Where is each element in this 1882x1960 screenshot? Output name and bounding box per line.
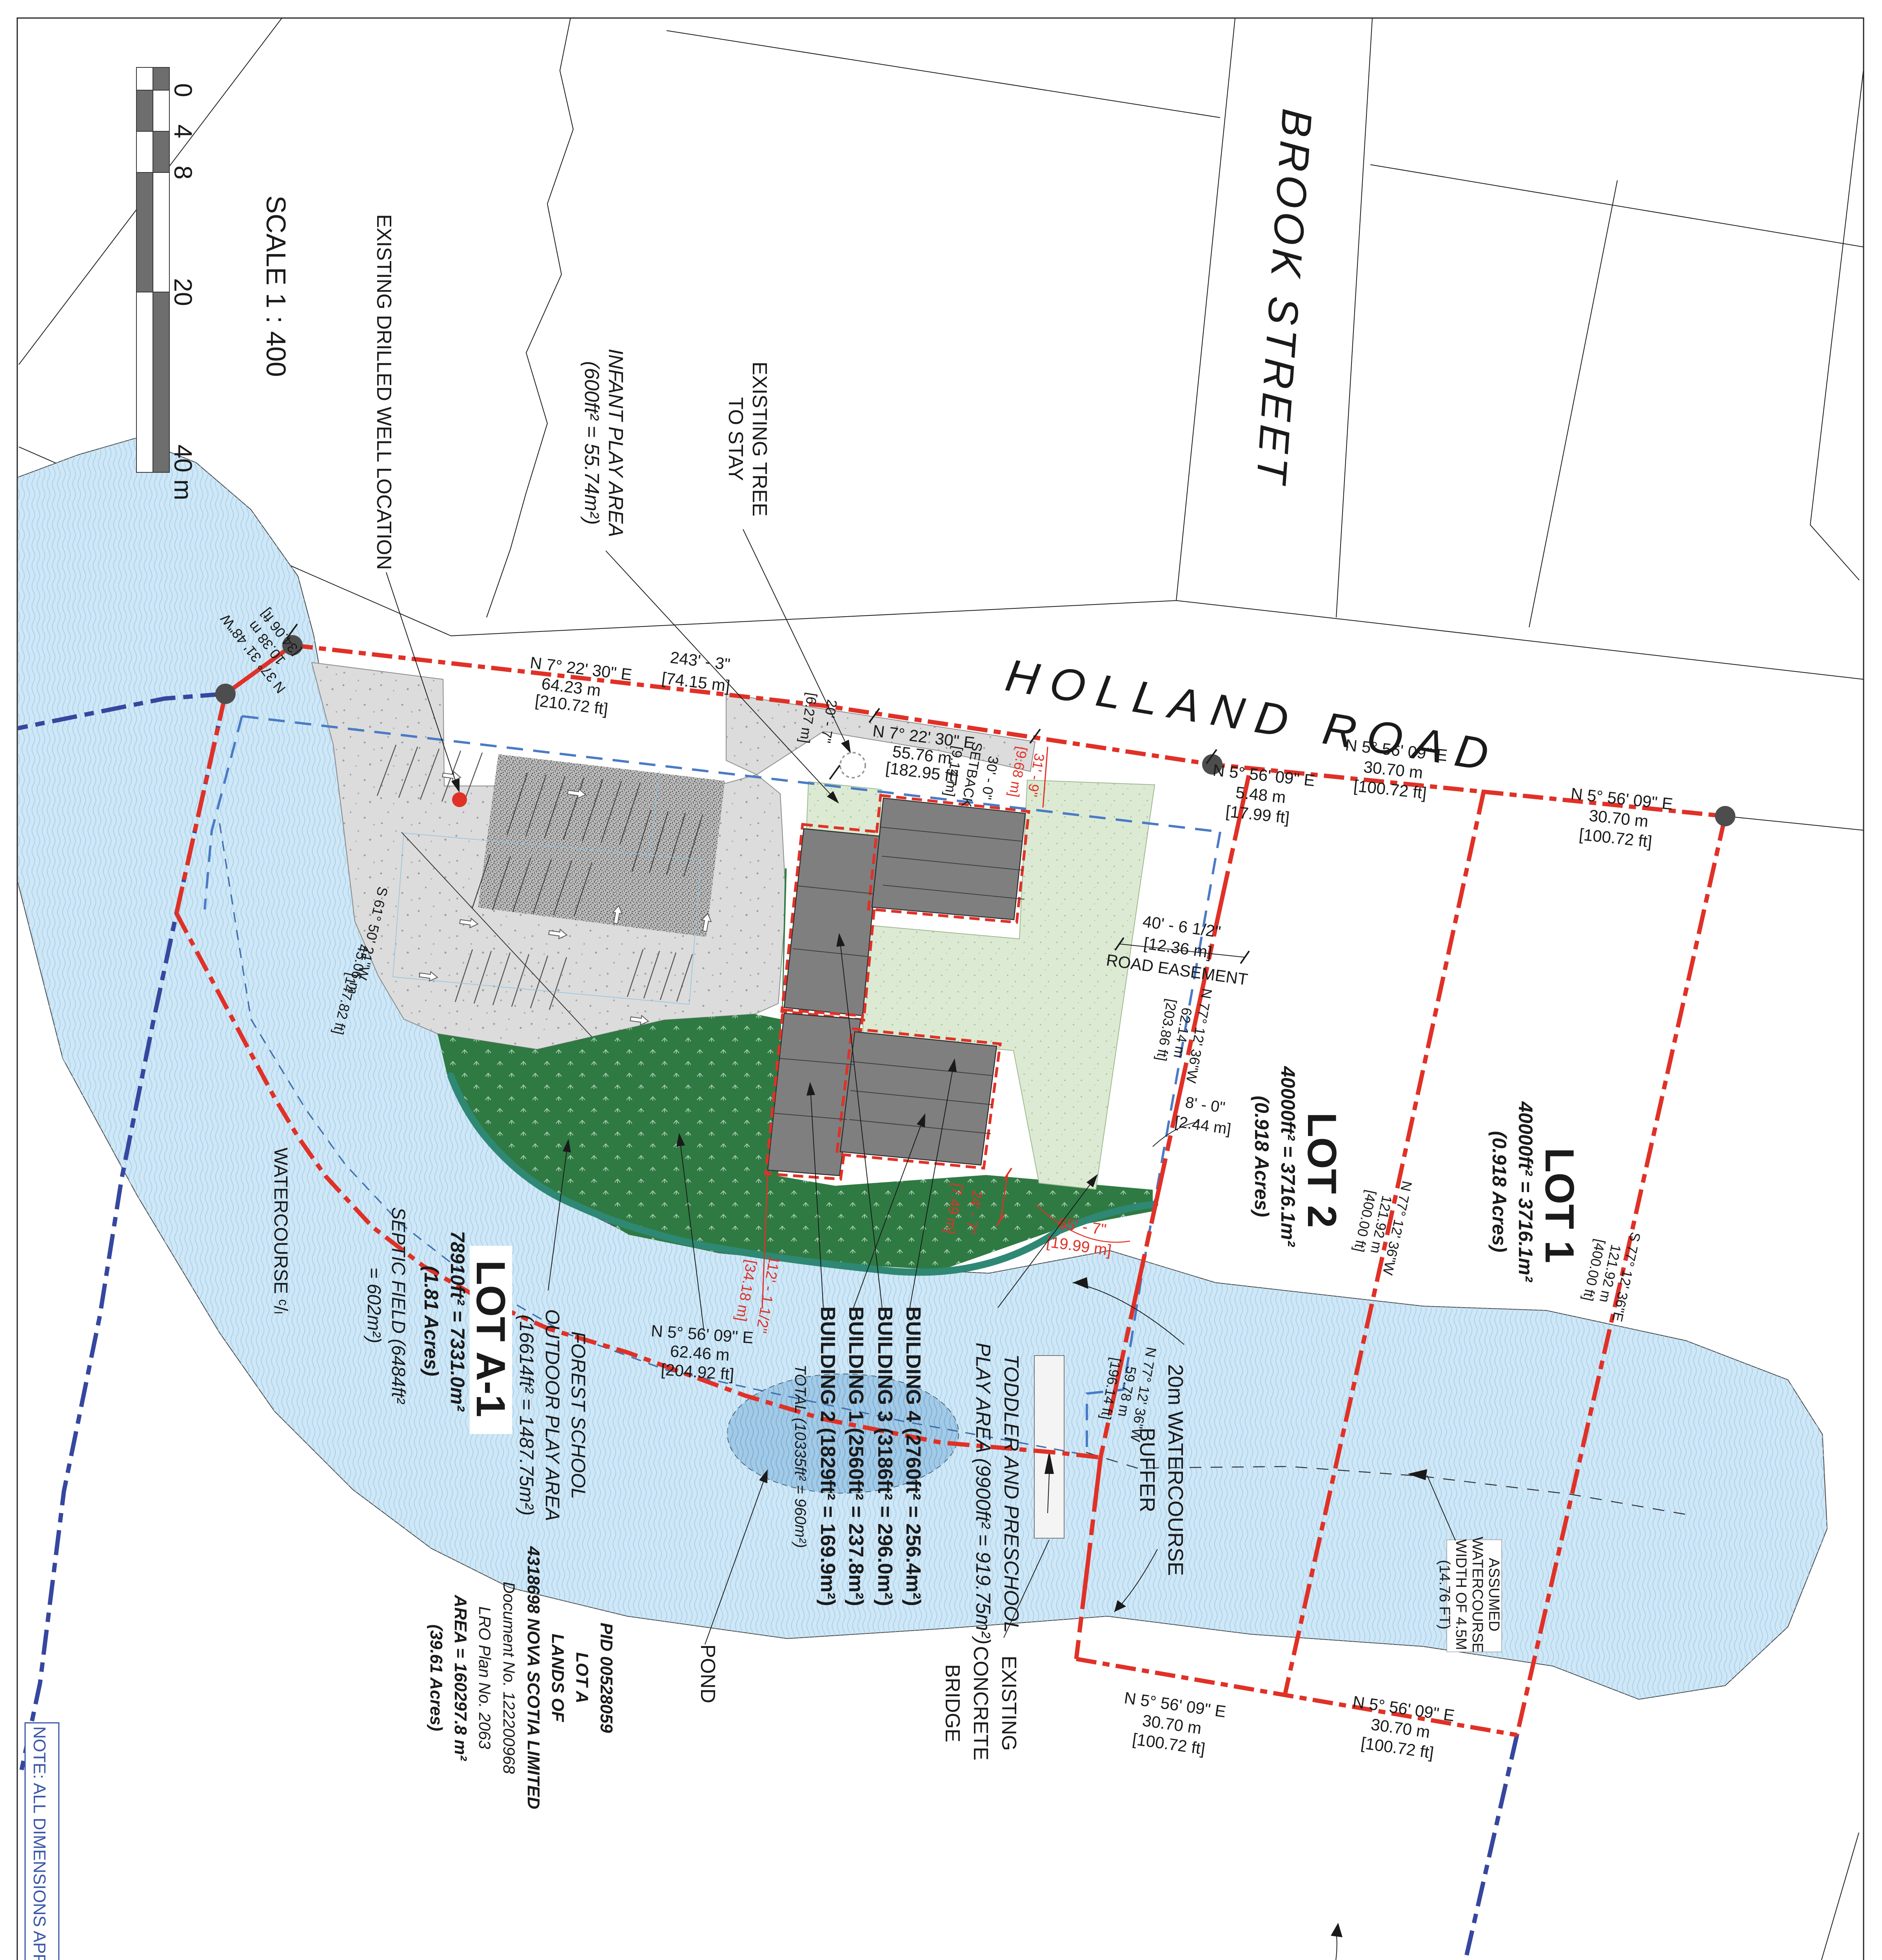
svg-text:OUTDOOR PLAY AREA: OUTDOOR PLAY AREA xyxy=(541,1309,563,1521)
svg-text:4: 4 xyxy=(169,124,197,138)
svg-text:WATERCOURSE: WATERCOURSE xyxy=(1469,1537,1486,1653)
svg-text:FOREST SCHOOL: FOREST SCHOOL xyxy=(567,1331,589,1499)
svg-text:= 602m²): = 602m²) xyxy=(363,1267,384,1343)
svg-text:LOT 1: LOT 1 xyxy=(1537,1148,1582,1263)
svg-text:N 5° 56' 09" E: N 5° 56' 09" E xyxy=(1212,761,1316,790)
svg-text:BUILDING 3 (3186ft² = 296.0m²): BUILDING 3 (3186ft² = 296.0m²) xyxy=(874,1307,896,1606)
svg-text:SCALE 1 : 400: SCALE 1 : 400 xyxy=(261,195,291,377)
svg-text:[2.44 m]: [2.44 m] xyxy=(1174,1113,1232,1138)
svg-text:20m WATERCOURSE: 20m WATERCOURSE xyxy=(1164,1364,1187,1576)
svg-text:8' - 0": 8' - 0" xyxy=(1184,1094,1226,1116)
svg-text:0: 0 xyxy=(169,83,197,97)
svg-text:NOTE: ALL DIMENSIONS APPROXIMA: NOTE: ALL DIMENSIONS APPROXIMATE xyxy=(30,1726,49,1960)
svg-text:LANDS OF: LANDS OF xyxy=(548,1634,567,1722)
svg-text:BUFFER: BUFFER xyxy=(1135,1428,1159,1512)
svg-text:LOT A-1: LOT A-1 xyxy=(468,1260,513,1417)
svg-text:TODDLER AND PRESCHOOL: TODDLER AND PRESCHOOL xyxy=(1000,1354,1023,1633)
svg-text:CONCRETE: CONCRETE xyxy=(969,1646,992,1760)
svg-text:BROOK STREET: BROOK STREET xyxy=(1248,107,1321,488)
svg-text:TOTAL (10335ft² = 960m²): TOTAL (10335ft² = 960m²) xyxy=(792,1365,809,1548)
svg-text:LOT 2: LOT 2 xyxy=(1299,1112,1344,1228)
svg-text:EXISTING TREETO STAY: EXISTING TREETO STAY xyxy=(724,362,771,517)
svg-text:(0.918 Acres): (0.918 Acres) xyxy=(1488,1131,1510,1252)
svg-text:INFANT PLAY AREA(600ft² = 55.7: INFANT PLAY AREA(600ft² = 55.74m²) xyxy=(580,349,627,537)
svg-text:243' - 3": 243' - 3" xyxy=(669,648,731,673)
svg-text:(39.61 Acres): (39.61 Acres) xyxy=(427,1624,446,1731)
svg-text:BUILDING 4 (2760ft² = 256.4m²): BUILDING 4 (2760ft² = 256.4m²) xyxy=(902,1307,925,1606)
svg-text:BUILDING 1 (2560ft² = 237.8m²): BUILDING 1 (2560ft² = 237.8m²) xyxy=(845,1307,867,1606)
svg-text:AREA = 160297.8 m²: AREA = 160297.8 m² xyxy=(451,1595,470,1761)
svg-text:8: 8 xyxy=(169,165,197,180)
svg-text:PLAY AREA (9900ft² = 919.75m²): PLAY AREA (9900ft² = 919.75m²) xyxy=(972,1343,994,1644)
svg-text:WATERCOURSE ᶜ/ₗ: WATERCOURSE ᶜ/ₗ xyxy=(270,1148,291,1314)
svg-text:LRO Plan No. 2063: LRO Plan No. 2063 xyxy=(476,1606,494,1749)
svg-text:20: 20 xyxy=(169,278,197,306)
svg-text:S 77° 12' 36"E121.92 m[400.00: S 77° 12' 36"E121.92 m[400.00 ft] xyxy=(1577,1224,1644,1323)
svg-text:LOT A: LOT A xyxy=(572,1652,592,1703)
svg-text:EXISTING DRILLED WELL LOCATION: EXISTING DRILLED WELL LOCATION xyxy=(372,214,395,570)
svg-text:WIDTH OF 4.5M: WIDTH OF 4.5M xyxy=(1453,1539,1469,1650)
svg-text:BUILDING 2 (1829ft² = 169.9m²): BUILDING 2 (1829ft² = 169.9m²) xyxy=(816,1307,839,1606)
svg-text:40000ft² = 3716.1m²: 40000ft² = 3716.1m² xyxy=(1277,1066,1299,1247)
svg-text:PID 00528059: PID 00528059 xyxy=(597,1622,616,1733)
svg-text:SEPTIC FIELD (6484ft²: SEPTIC FIELD (6484ft² xyxy=(388,1207,409,1405)
svg-text:EXISTING: EXISTING xyxy=(997,1656,1020,1751)
svg-text:N 5° 56' 09" E: N 5° 56' 09" E xyxy=(1570,784,1674,813)
svg-text:40000ft² = 3716.1m²: 40000ft² = 3716.1m² xyxy=(1515,1101,1537,1282)
svg-text:40 m: 40 m xyxy=(169,445,197,500)
svg-text:BRIDGE: BRIDGE xyxy=(941,1664,964,1742)
svg-text:(1.81 Acres): (1.81 Acres) xyxy=(420,1266,442,1376)
svg-text:(0.918 Acres): (0.918 Acres) xyxy=(1251,1096,1273,1217)
svg-text:Document No. 122200968: Document No. 122200968 xyxy=(500,1582,518,1774)
svg-text:4318698 NOVA SCOTIA LIMITED: 4318698 NOVA SCOTIA LIMITED xyxy=(524,1546,543,1809)
svg-text:(16614ft² = 1487.75m²): (16614ft² = 1487.75m²) xyxy=(516,1315,538,1516)
svg-text:POND: POND xyxy=(696,1644,719,1703)
svg-text:78910ft² = 7331.0m²: 78910ft² = 7331.0m² xyxy=(447,1231,469,1412)
svg-text:(14.76 FT): (14.76 FT) xyxy=(1436,1560,1453,1629)
svg-text:ASSUMED: ASSUMED xyxy=(1486,1558,1502,1632)
